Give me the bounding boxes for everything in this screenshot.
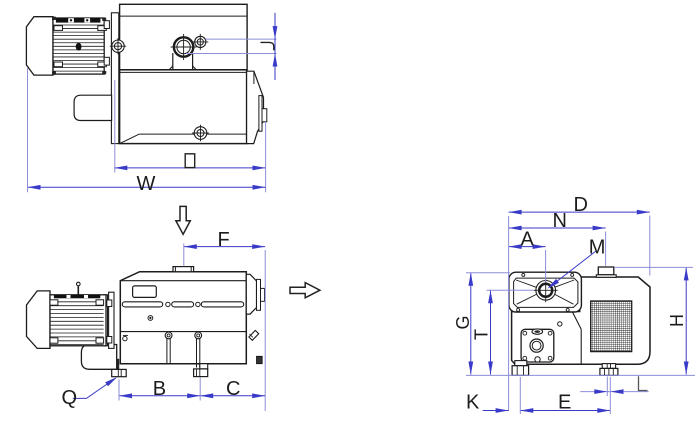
- svg-text:A: A: [521, 229, 535, 251]
- svg-text:F: F: [218, 229, 230, 251]
- svg-text:T: T: [472, 329, 492, 340]
- svg-text:W: W: [137, 173, 156, 195]
- svg-text:G: G: [453, 315, 473, 329]
- svg-text:Q: Q: [62, 387, 78, 409]
- svg-text:M: M: [589, 237, 606, 259]
- svg-text:K: K: [466, 392, 480, 414]
- svg-text:N: N: [553, 210, 567, 232]
- svg-text:B: B: [153, 378, 166, 400]
- svg-text:C: C: [226, 378, 240, 400]
- svg-text:H: H: [667, 314, 687, 327]
- svg-text:D: D: [574, 194, 588, 216]
- svg-text:E: E: [558, 392, 571, 414]
